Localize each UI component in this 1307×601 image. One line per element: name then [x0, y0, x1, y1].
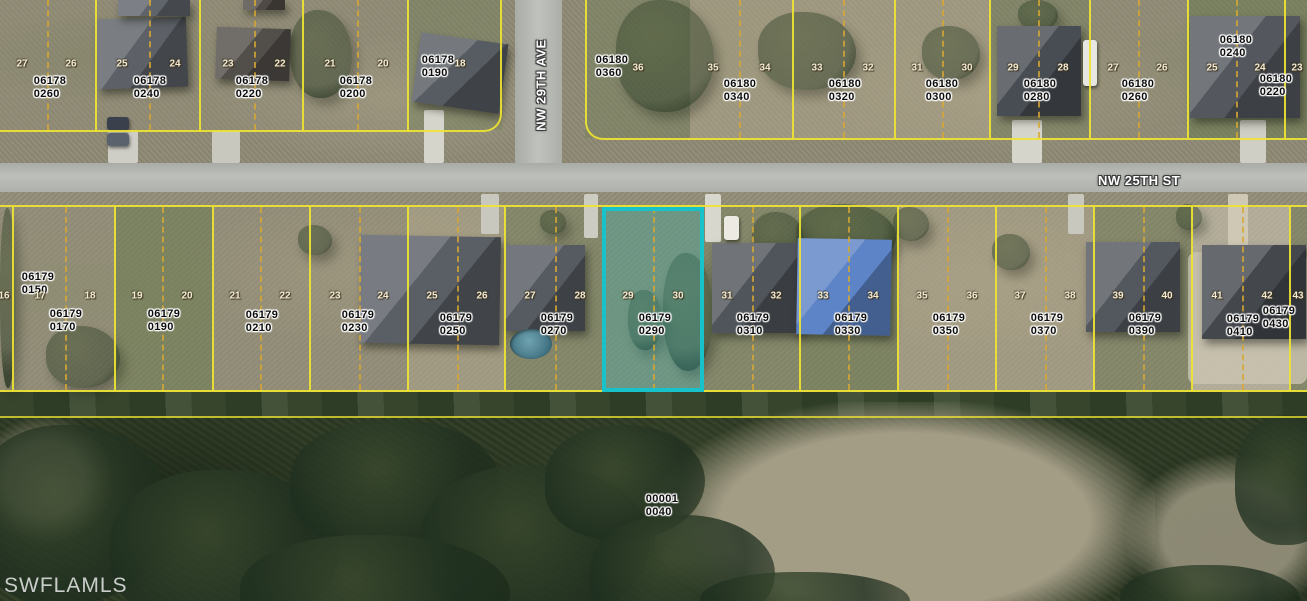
parcel-id-label: 061790270	[541, 312, 574, 338]
parcel-boundary-line	[989, 0, 991, 138]
parcel-boundary-line	[302, 0, 304, 130]
lot-divider-line	[739, 0, 741, 138]
lot-divider-line	[1143, 207, 1145, 390]
lot-number: 22	[274, 59, 285, 70]
lot-number: 23	[329, 291, 340, 302]
parcel-id-label: 061790250	[440, 312, 473, 338]
lot-divider-line	[947, 207, 949, 390]
parcel-id-label: 061800280	[1024, 78, 1057, 104]
parcel-id-label: 061800300	[926, 78, 959, 104]
lot-number: 41	[1211, 291, 1222, 302]
parcel-boundary-line	[407, 207, 409, 390]
lot-divider-line	[1236, 0, 1238, 138]
street-label-nw-29th-ave: NW 29TH AVE	[534, 39, 549, 130]
lot-number: 33	[817, 291, 828, 302]
parcel-id-label: 061790170	[50, 308, 83, 334]
lot-divider-line	[47, 0, 49, 130]
parcel-id-label: 061790370	[1031, 312, 1064, 338]
driveway	[705, 194, 721, 242]
parcel-boundary-line	[792, 0, 794, 138]
lot-number: 24	[377, 291, 388, 302]
driveway	[212, 131, 240, 163]
parcel-boundary-line	[95, 0, 97, 130]
lot-number: 32	[862, 63, 873, 74]
house-roof	[118, 0, 190, 16]
lot-divider-line	[260, 207, 262, 390]
parcel-id-label: 061790410	[1227, 313, 1260, 339]
house-roof	[215, 27, 291, 82]
lot-number: 27	[524, 291, 535, 302]
lot-number: 29	[1007, 63, 1018, 74]
house-roof	[243, 0, 285, 10]
parcel-boundary-line	[995, 207, 997, 390]
lot-number: 25	[116, 59, 127, 70]
lot-divider-line	[1242, 207, 1244, 390]
parcel-boundary-line	[1284, 0, 1286, 138]
driveway	[1228, 194, 1248, 250]
lot-number: 42	[1261, 291, 1272, 302]
lot-number: 22	[279, 291, 290, 302]
lot-number: 30	[961, 63, 972, 74]
lot-divider-line	[149, 0, 151, 130]
lot-number: 37	[1014, 291, 1025, 302]
lot-number: 35	[707, 63, 718, 74]
parcel-boundary-line	[1191, 207, 1193, 390]
lot-number: 23	[1291, 63, 1302, 74]
lot-number: 26	[1156, 63, 1167, 74]
vehicle	[107, 117, 129, 130]
lot-number: 26	[65, 59, 76, 70]
lot-number: 31	[911, 63, 922, 74]
lot-number: 26	[476, 291, 487, 302]
tree	[540, 210, 566, 234]
parcel-id-label: 061780240	[134, 75, 167, 101]
street-label-nw-25th-st: NW 25TH ST	[1098, 173, 1180, 188]
lot-divider-line	[752, 207, 754, 390]
lot-number: 25	[426, 291, 437, 302]
parcel-id-label: 061790190	[148, 308, 181, 334]
parcel-id-label: 061790350	[933, 312, 966, 338]
block-boundary-line	[0, 130, 410, 132]
driveway	[481, 194, 499, 234]
parcel-boundary-line	[1289, 207, 1291, 390]
lot-number: 20	[181, 291, 192, 302]
lot-number: 27	[1107, 63, 1118, 74]
parcel-boundary-line	[897, 207, 899, 390]
parcel-id-label: 061800340	[724, 78, 757, 104]
parcel-id-label: 061800240	[1220, 34, 1253, 60]
lot-number: 39	[1112, 291, 1123, 302]
parcel-boundary-line	[114, 207, 116, 390]
lot-number: 36	[966, 291, 977, 302]
lot-number: 33	[811, 63, 822, 74]
lot-number: 29	[622, 291, 633, 302]
lot-number: 25	[1206, 63, 1217, 74]
parcel-id-label: 061780260	[34, 75, 67, 101]
parcel-id-label: 061800360	[596, 54, 629, 80]
tree	[992, 234, 1030, 270]
parcel-id-label: 061790330	[835, 312, 868, 338]
lot-divider-line	[359, 207, 361, 390]
parcel-boundary-line	[504, 207, 506, 390]
lot-number: 35	[916, 291, 927, 302]
lot-divider-line	[1138, 0, 1140, 138]
parcel-boundary-line	[1093, 207, 1095, 390]
mls-watermark: SWFLAMLS	[4, 574, 128, 598]
lot-divider-line	[1045, 207, 1047, 390]
parcel-boundary-line	[12, 207, 14, 390]
lot-number: 24	[169, 59, 180, 70]
lot-divider-line	[457, 207, 459, 390]
block-boundary-line	[688, 138, 1307, 140]
parcel-boundary-line	[1089, 0, 1091, 138]
vehicle	[107, 133, 129, 146]
driveway	[584, 194, 598, 238]
parcel-id-label: 061790210	[246, 309, 279, 335]
lot-number: 34	[759, 63, 770, 74]
lot-number: 38	[1064, 291, 1075, 302]
parcel-boundary-line	[894, 0, 896, 138]
parcel-id-label: 061800260	[1122, 78, 1155, 104]
tree	[298, 225, 332, 255]
parcel-id-label: 061800320	[829, 78, 862, 104]
lot-number: 21	[229, 291, 240, 302]
lot-number: 23	[222, 59, 233, 70]
vehicle	[724, 216, 739, 240]
lot-number: 34	[867, 291, 878, 302]
driveway	[1068, 194, 1084, 234]
parcel-id-label: 061780200	[340, 75, 373, 101]
driveway	[1240, 120, 1266, 163]
lot-number: 24	[1254, 63, 1265, 74]
lot-divider-line	[357, 0, 359, 130]
parcel-boundary-line	[799, 207, 801, 390]
lot-number: 17	[34, 291, 45, 302]
lot-number: 27	[16, 59, 27, 70]
lot-number: 30	[672, 291, 683, 302]
lot-divider-line	[254, 0, 256, 130]
parcel-id-label: 061790390	[1129, 312, 1162, 338]
lot-divider-line	[65, 207, 67, 390]
parcel-id-label: 061780220	[236, 75, 269, 101]
lot-divider-line	[555, 207, 557, 390]
lot-divider-line	[848, 207, 850, 390]
parcel-boundary-line	[309, 207, 311, 390]
tree-canopy	[1235, 415, 1307, 545]
lot-divider-line	[843, 0, 845, 138]
tree	[46, 326, 120, 388]
lot-divider-line	[1038, 0, 1040, 138]
lot-number: 32	[770, 291, 781, 302]
highlighted-parcel[interactable]	[602, 207, 704, 392]
parcel-boundary-line	[199, 0, 201, 130]
aerial-map[interactable]: NW 25TH ST NW 29TH AVE 00001 0040 SWFLAM…	[0, 0, 1307, 601]
lot-number: 43	[1292, 291, 1303, 302]
parcel-id-label: 061800220	[1260, 73, 1293, 99]
tree	[1176, 204, 1202, 230]
parcel-id-label: 061790430	[1263, 305, 1296, 331]
lot-divider-line	[162, 207, 164, 390]
lot-number: 18	[454, 59, 465, 70]
lot-number: 28	[1057, 63, 1068, 74]
lot-number: 36	[632, 63, 643, 74]
rear-easement-line	[0, 416, 1307, 418]
lot-number: 31	[721, 291, 732, 302]
lot-number: 19	[131, 291, 142, 302]
lot-number: 28	[574, 291, 585, 302]
rear-parcel-label: 00001 0040	[646, 493, 679, 519]
lot-number: 21	[324, 59, 335, 70]
lot-number: 40	[1161, 291, 1172, 302]
lot-divider-line	[942, 0, 944, 138]
lot-number: 18	[84, 291, 95, 302]
parcel-id-label: 061790290	[639, 312, 672, 338]
lot-number: 20	[377, 59, 388, 70]
parcel-boundary-line	[1187, 0, 1189, 138]
parcel-id-label: 061780190	[422, 54, 455, 80]
parcel-boundary-line	[212, 207, 214, 390]
lot-number: 16	[0, 291, 10, 302]
parcel-id-label: 061790310	[737, 312, 770, 338]
parcel-id-label: 061790230	[342, 309, 375, 335]
parcel-ground	[115, 207, 213, 390]
